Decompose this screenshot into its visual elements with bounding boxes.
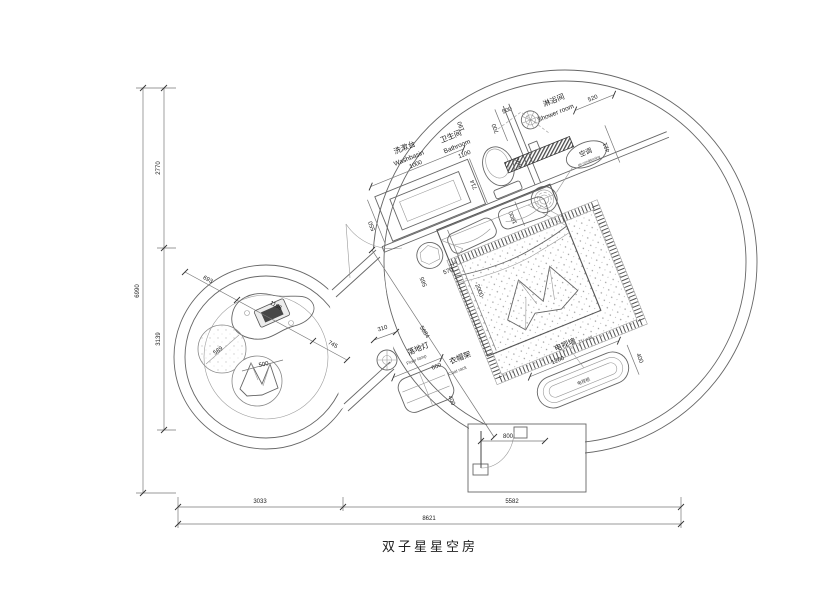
dim-400-tv: 400: [634, 353, 644, 365]
label-shower-en: Shower room: [537, 103, 575, 124]
dim-height-total: 6990: [135, 284, 141, 298]
ac-leader-line: [550, 168, 579, 193]
pillow-right: [497, 195, 550, 231]
dim-height-top: 2770: [156, 161, 162, 175]
coat-rack: 660 衣帽架 Coat rack 400: [389, 348, 472, 416]
label-coat-rack-cn: 衣帽架: [448, 348, 473, 366]
label-floor-lamp-cn: 落地灯: [406, 339, 431, 357]
dim-height-mid: 3139: [156, 332, 162, 346]
entrance: 800: [468, 424, 586, 492]
left-dimensions: 6990 2770 3139: [135, 85, 176, 496]
floor-plan-page: 洗漱台 Washbasin 1000 550 714 1800 卫生间 Bath…: [0, 0, 837, 592]
bottom-dimensions: 3033 5582 8621: [175, 497, 684, 528]
dim-565: 565: [419, 275, 429, 287]
tv-label-leader: [572, 352, 584, 368]
dim-800: 800: [503, 434, 514, 440]
table-knob-right: [289, 321, 294, 326]
label-shower-cn: 淋浴间: [541, 91, 566, 109]
dim-width-left: 3033: [253, 499, 267, 505]
dim-bathroom: 1100: [458, 150, 473, 161]
toilet: [477, 142, 524, 200]
shower-screen: [505, 136, 574, 172]
blanket-stool: 500: [232, 356, 283, 406]
dim-660: 660: [431, 362, 443, 372]
drawing-title: 双子星星空房: [382, 539, 478, 554]
label-ac-cn: 空调: [578, 146, 593, 159]
dim-1800: 1800: [508, 209, 519, 224]
dim-width-right: 5582: [505, 499, 519, 505]
dim-421: 421: [602, 141, 612, 153]
label-tv-cabinet: 电视柜: [576, 375, 592, 387]
dim-width-total: 8621: [422, 516, 436, 522]
table-knob-left: [245, 311, 250, 316]
dim-520: 520: [587, 94, 599, 104]
dim-5684: 5684: [418, 325, 431, 340]
bedside-stool: [413, 239, 447, 273]
floor-plan-drawing: 洗漱台 Washbasin 1000 550 714 1800 卫生间 Bath…: [0, 0, 837, 592]
passage: [328, 224, 402, 411]
dim-693: 693: [202, 275, 214, 285]
